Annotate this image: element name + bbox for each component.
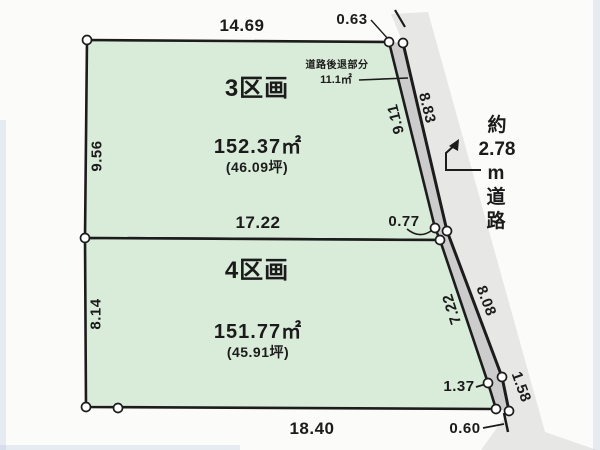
parcel3-area-m2: 152.37㎡	[214, 134, 302, 158]
road-width-char-approx: 約	[487, 113, 506, 136]
dim-left-parcel3: 9.56	[89, 140, 106, 171]
dim-063-leader	[371, 20, 389, 40]
dim-137: 1.37	[443, 378, 474, 395]
dim-corner-063: 0.63	[336, 11, 367, 28]
land-plot-diagram: 14.69 0.63 道路後退部分 11.1㎡ 9.11 8.83 9.56 3…	[0, 0, 600, 450]
dim-060: 0.60	[449, 420, 480, 437]
dim-left-parcel4: 8.14	[88, 298, 105, 329]
road-width-char-ro: 路	[486, 209, 506, 232]
parcel4-area-m2: 151.77㎡	[214, 319, 302, 343]
setback-note-title: 道路後退部分	[306, 58, 369, 71]
road-width-value: 2.78	[479, 139, 516, 160]
dim-077: 0.77	[388, 213, 419, 230]
road-width-char-michi: 道	[486, 185, 505, 208]
parcel3-area-tsubo: (46.09坪)	[226, 159, 288, 175]
setback-note-area: 11.1㎡	[320, 72, 352, 86]
road-width-char-m: m	[488, 163, 505, 184]
parcel4-label: 4区画	[225, 257, 289, 284]
dim-top-parcel3: 14.69	[219, 16, 264, 35]
dim-mid-divider: 17.22	[235, 213, 280, 232]
parcel3-label: 3区画	[225, 75, 289, 102]
parcel4-area-tsubo: (45.91坪)	[227, 344, 289, 360]
plot-survey-canvas: 14.69 0.63 道路後退部分 11.1㎡ 9.11 8.83 9.56 3…	[0, 0, 600, 450]
dim-bottom-parcel4: 18.40	[289, 419, 334, 438]
